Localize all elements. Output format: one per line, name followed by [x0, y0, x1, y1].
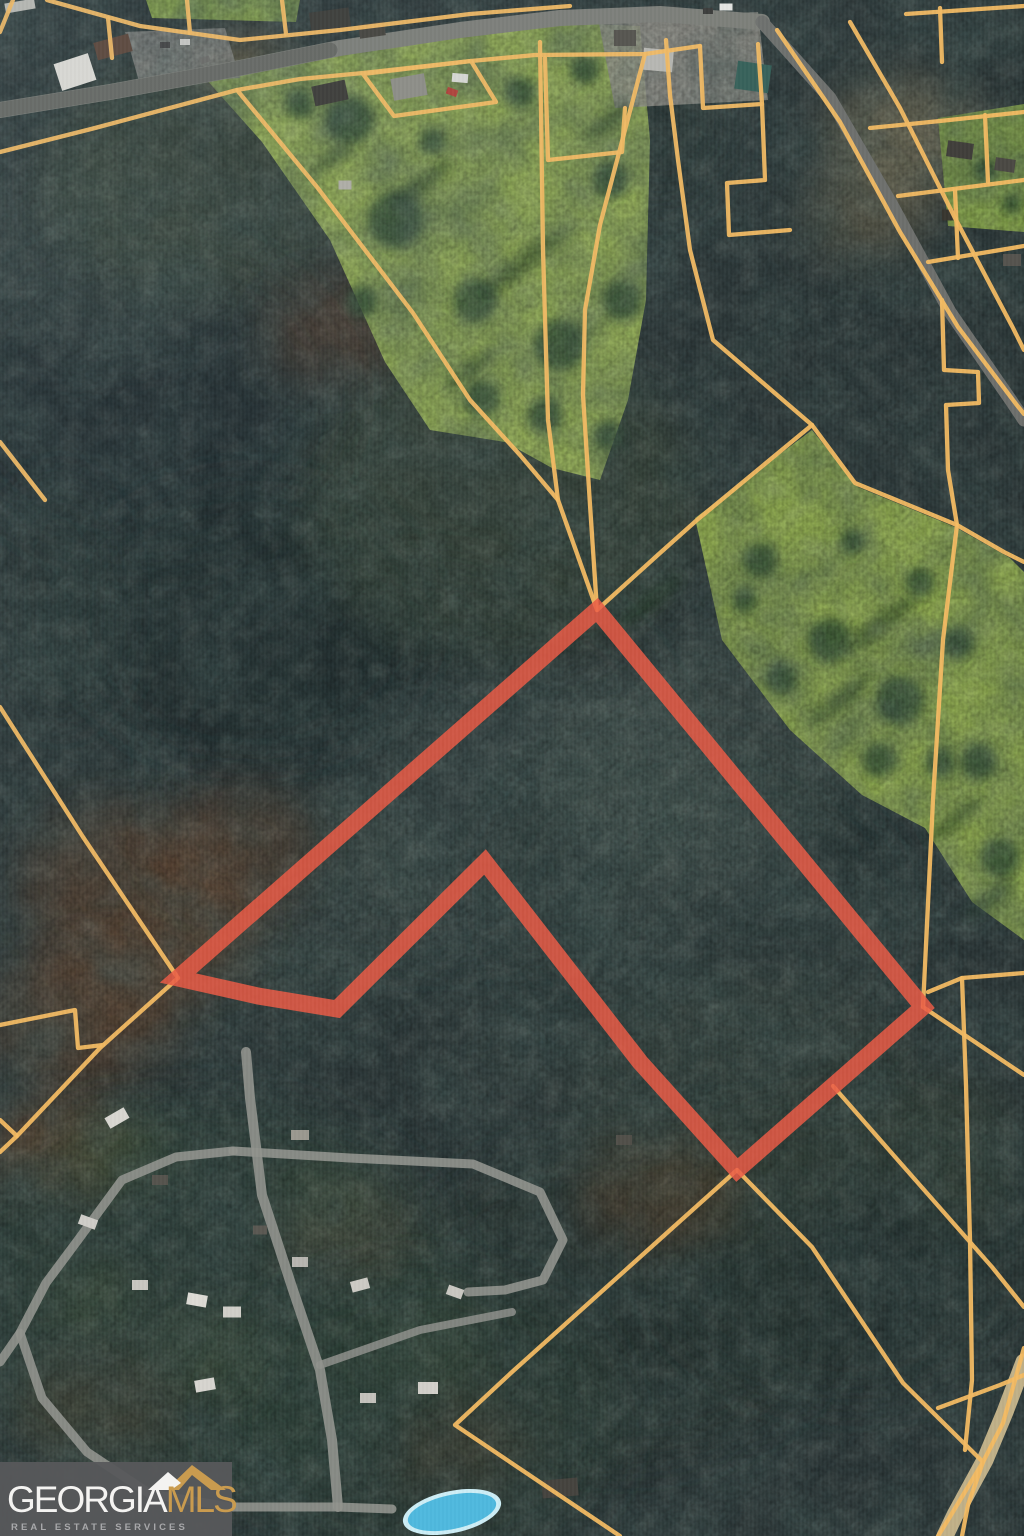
building-roof: [160, 42, 170, 48]
building-roof: [614, 30, 636, 46]
aerial-parcel-map[interactable]: GEORGIAMLS REAL ESTATE SERVICES: [0, 0, 1024, 1536]
brand-mls-text: MLS: [166, 1479, 236, 1520]
brand-tagline-text: REAL ESTATE SERVICES: [11, 1522, 188, 1533]
building-roof: [720, 4, 733, 11]
georgia-mls-watermark: GEORGIAMLS REAL ESTATE SERVICES: [0, 1462, 232, 1536]
building-roof: [223, 1307, 241, 1318]
building-roof: [339, 181, 352, 190]
building-roof: [291, 1130, 309, 1140]
parcel-boundary-line: [187, 0, 190, 33]
brand-georgia-text: GEORGIA: [7, 1479, 166, 1520]
building-roof: [1003, 254, 1021, 266]
building-roof: [616, 1135, 632, 1145]
fine-grain-texture: [0, 0, 1024, 1536]
building-roof: [360, 1393, 376, 1403]
brand-wordmark: GEORGIAMLS: [7, 1481, 236, 1518]
building-roof: [734, 61, 772, 93]
parcel-boundary-line: [985, 115, 988, 182]
building-roof: [418, 1382, 438, 1394]
building-roof: [994, 157, 1016, 173]
building-roof: [292, 1257, 308, 1267]
building-roof: [703, 8, 713, 14]
building-roof: [180, 39, 190, 45]
building-roof: [132, 1280, 148, 1290]
satellite-canvas: [0, 0, 1024, 1536]
parcel-boundary-line: [940, 8, 942, 62]
building-roof: [452, 73, 469, 83]
building-roof: [152, 1175, 168, 1185]
parcel-boundary-line: [955, 190, 958, 258]
building-roof: [253, 1226, 267, 1235]
